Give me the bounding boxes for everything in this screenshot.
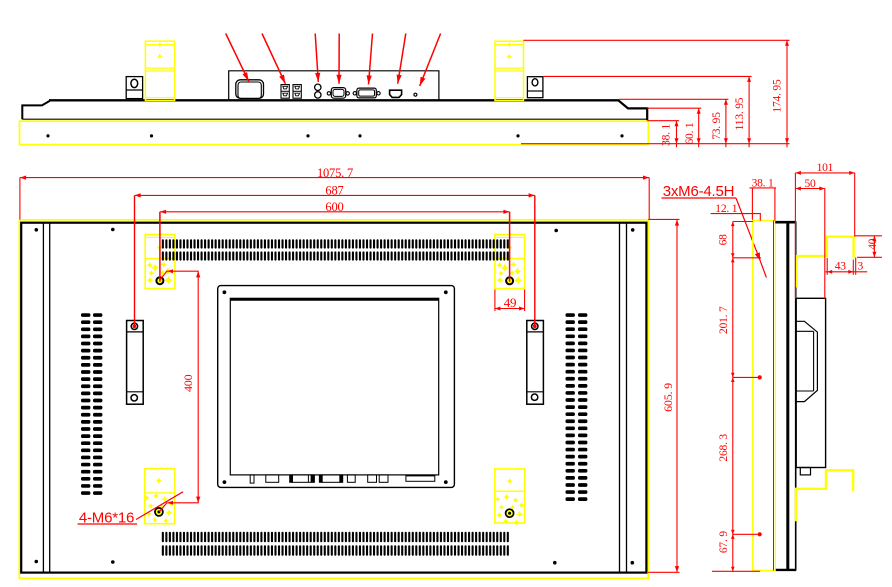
- svg-text:605. 9: 605. 9: [661, 383, 675, 412]
- svg-text:68: 68: [718, 234, 730, 246]
- svg-text:60. 1: 60. 1: [684, 122, 696, 144]
- svg-text:101: 101: [817, 162, 834, 174]
- svg-text:38. 1: 38. 1: [660, 123, 672, 145]
- svg-text:1075. 7: 1075. 7: [317, 166, 353, 180]
- svg-text:400: 400: [181, 374, 195, 392]
- svg-text:174. 95: 174. 95: [772, 79, 784, 113]
- svg-text:49: 49: [504, 295, 517, 310]
- svg-text:67. 9: 67. 9: [718, 531, 730, 553]
- svg-text:3: 3: [858, 261, 864, 273]
- svg-text:113. 95: 113. 95: [734, 97, 746, 130]
- svg-text:687: 687: [325, 184, 343, 198]
- svg-text:73. 95: 73. 95: [711, 112, 723, 140]
- svg-text:600: 600: [325, 200, 343, 214]
- svg-text:40: 40: [867, 238, 879, 250]
- svg-text:43: 43: [835, 261, 847, 273]
- svg-text:268. 3: 268. 3: [718, 434, 730, 462]
- svg-text:50: 50: [804, 178, 816, 190]
- svg-text:201. 7: 201. 7: [718, 306, 730, 334]
